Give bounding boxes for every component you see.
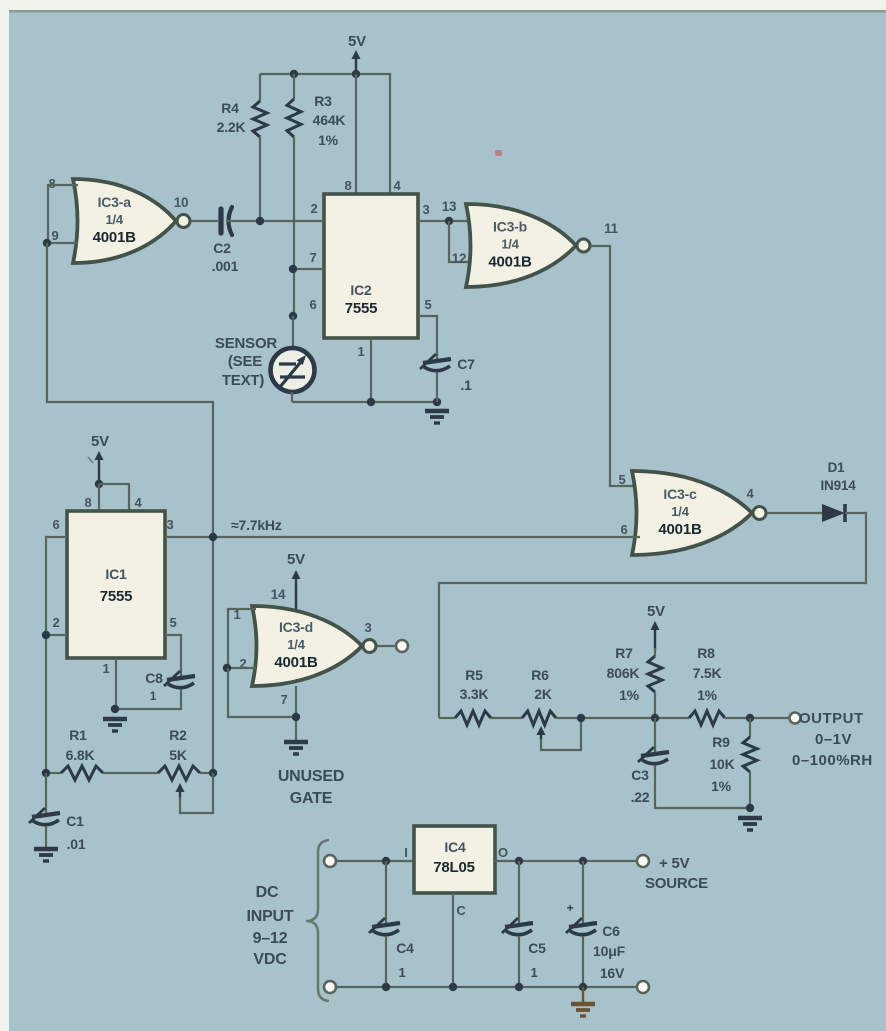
svg-text:3: 3 xyxy=(422,202,429,217)
svg-text:7.5K: 7.5K xyxy=(693,665,722,681)
svg-text:IC4: IC4 xyxy=(444,839,466,855)
svg-text:4001B: 4001B xyxy=(658,521,702,538)
svg-text:8: 8 xyxy=(48,176,55,191)
svg-text:3: 3 xyxy=(364,620,371,635)
svg-text:VDC: VDC xyxy=(253,951,287,968)
svg-text:2.2K: 2.2K xyxy=(217,119,246,135)
svg-text:≈7.7kHz: ≈7.7kHz xyxy=(231,517,282,533)
svg-text:UNUSED: UNUSED xyxy=(278,768,344,785)
svg-text:1/4: 1/4 xyxy=(105,212,123,227)
svg-text:7: 7 xyxy=(309,250,316,265)
svg-text:5V: 5V xyxy=(647,603,665,620)
svg-text:7: 7 xyxy=(280,692,287,707)
svg-text:IN914: IN914 xyxy=(820,478,856,493)
svg-text:16V: 16V xyxy=(600,965,625,981)
svg-text:1: 1 xyxy=(150,689,157,703)
svg-text:C3: C3 xyxy=(631,767,649,783)
svg-text:+: + xyxy=(567,901,574,915)
svg-text:R8: R8 xyxy=(697,645,715,661)
svg-text:.22: .22 xyxy=(631,789,650,805)
svg-text:2: 2 xyxy=(310,201,317,216)
svg-text:0–100%RH: 0–100%RH xyxy=(792,752,873,769)
svg-text:13: 13 xyxy=(442,199,457,214)
svg-text:C5: C5 xyxy=(528,940,546,956)
svg-text:4: 4 xyxy=(393,178,401,193)
svg-text:12: 12 xyxy=(452,251,467,266)
svg-text:R7: R7 xyxy=(615,645,633,661)
svg-text:1%: 1% xyxy=(619,687,640,703)
svg-text:6: 6 xyxy=(309,297,316,312)
svg-text:4: 4 xyxy=(746,486,754,501)
svg-text:OUTPUT: OUTPUT xyxy=(799,710,864,727)
svg-text:1: 1 xyxy=(530,965,537,980)
svg-text:C8: C8 xyxy=(145,670,163,686)
svg-text:IC3-b: IC3-b xyxy=(493,219,527,235)
svg-text:IC3-d: IC3-d xyxy=(279,619,313,635)
svg-text:5V: 5V xyxy=(91,433,109,450)
svg-text:TEXT): TEXT) xyxy=(222,372,265,389)
svg-text:464K: 464K xyxy=(313,112,346,128)
svg-text:0–1V: 0–1V xyxy=(815,731,852,748)
svg-text:SENSOR: SENSOR xyxy=(215,335,278,352)
svg-text:I: I xyxy=(404,845,407,860)
svg-text:7555: 7555 xyxy=(345,300,378,317)
svg-text:SOURCE: SOURCE xyxy=(645,875,708,892)
svg-text:1%: 1% xyxy=(711,778,732,794)
svg-text:.001: .001 xyxy=(212,258,239,274)
svg-text:C6: C6 xyxy=(602,923,620,939)
svg-text:5V: 5V xyxy=(287,551,305,568)
svg-text:IC3-c: IC3-c xyxy=(663,486,697,502)
svg-text:78L05: 78L05 xyxy=(433,859,475,876)
svg-text:6.8K: 6.8K xyxy=(66,747,95,763)
svg-text:+ 5V: + 5V xyxy=(659,855,690,872)
svg-text:1: 1 xyxy=(398,965,405,980)
svg-text:14: 14 xyxy=(271,587,286,602)
svg-text:R1: R1 xyxy=(69,727,87,743)
svg-text:1: 1 xyxy=(102,661,109,676)
svg-text:2: 2 xyxy=(52,615,59,630)
svg-text:5V: 5V xyxy=(348,33,366,50)
svg-text:R3: R3 xyxy=(314,93,332,109)
svg-text:4001B: 4001B xyxy=(93,229,137,246)
svg-text:C4: C4 xyxy=(396,940,414,956)
svg-text:3: 3 xyxy=(166,517,173,532)
svg-text:C1: C1 xyxy=(66,813,84,829)
svg-text:2K: 2K xyxy=(534,686,552,702)
svg-text:6: 6 xyxy=(52,517,59,532)
svg-text:INPUT: INPUT xyxy=(246,908,293,925)
svg-text:O: O xyxy=(498,845,508,860)
svg-text:8: 8 xyxy=(344,178,351,193)
svg-text:4: 4 xyxy=(134,495,142,510)
svg-text:4001B: 4001B xyxy=(488,254,532,271)
svg-text:6: 6 xyxy=(620,522,627,537)
svg-text:1/4: 1/4 xyxy=(501,237,519,252)
svg-text:10K: 10K xyxy=(709,756,734,772)
svg-text:3.3K: 3.3K xyxy=(460,686,489,702)
svg-text:8: 8 xyxy=(84,495,91,510)
svg-text:R2: R2 xyxy=(169,727,187,743)
svg-text:10μF: 10μF xyxy=(593,943,626,959)
svg-text:C2: C2 xyxy=(213,240,231,256)
svg-text:9: 9 xyxy=(51,228,58,243)
svg-text:.1: .1 xyxy=(460,377,472,393)
svg-text:11: 11 xyxy=(604,221,619,236)
svg-text:R5: R5 xyxy=(465,667,483,683)
svg-text:806K: 806K xyxy=(607,665,640,681)
svg-text:R9: R9 xyxy=(712,734,730,750)
svg-text:1/4: 1/4 xyxy=(671,504,689,519)
svg-text:IC2: IC2 xyxy=(350,282,372,298)
svg-text:1%: 1% xyxy=(318,132,339,148)
svg-text:(SEE: (SEE xyxy=(228,353,262,370)
svg-text:IC3-a: IC3-a xyxy=(98,194,132,210)
svg-text:1/4: 1/4 xyxy=(287,637,305,652)
svg-text:IC1: IC1 xyxy=(105,566,127,582)
svg-text:5: 5 xyxy=(618,472,625,487)
svg-text:R4: R4 xyxy=(221,100,239,116)
svg-text:C7: C7 xyxy=(457,356,475,372)
svg-text:.01: .01 xyxy=(67,836,86,852)
svg-text:4001B: 4001B xyxy=(274,654,318,671)
svg-text:GATE: GATE xyxy=(290,790,333,807)
svg-text:DC: DC xyxy=(256,884,279,901)
svg-text:9–12: 9–12 xyxy=(253,930,288,947)
svg-text:5: 5 xyxy=(424,297,431,312)
svg-text:C: C xyxy=(456,903,466,918)
svg-text:10: 10 xyxy=(174,195,189,210)
svg-text:7555: 7555 xyxy=(100,588,133,605)
svg-text:1: 1 xyxy=(357,344,364,359)
svg-text:5: 5 xyxy=(169,615,176,630)
svg-text:1%: 1% xyxy=(697,687,718,703)
svg-text:5K: 5K xyxy=(169,747,187,763)
svg-text:R6: R6 xyxy=(531,667,549,683)
svg-text:D1: D1 xyxy=(828,460,846,475)
